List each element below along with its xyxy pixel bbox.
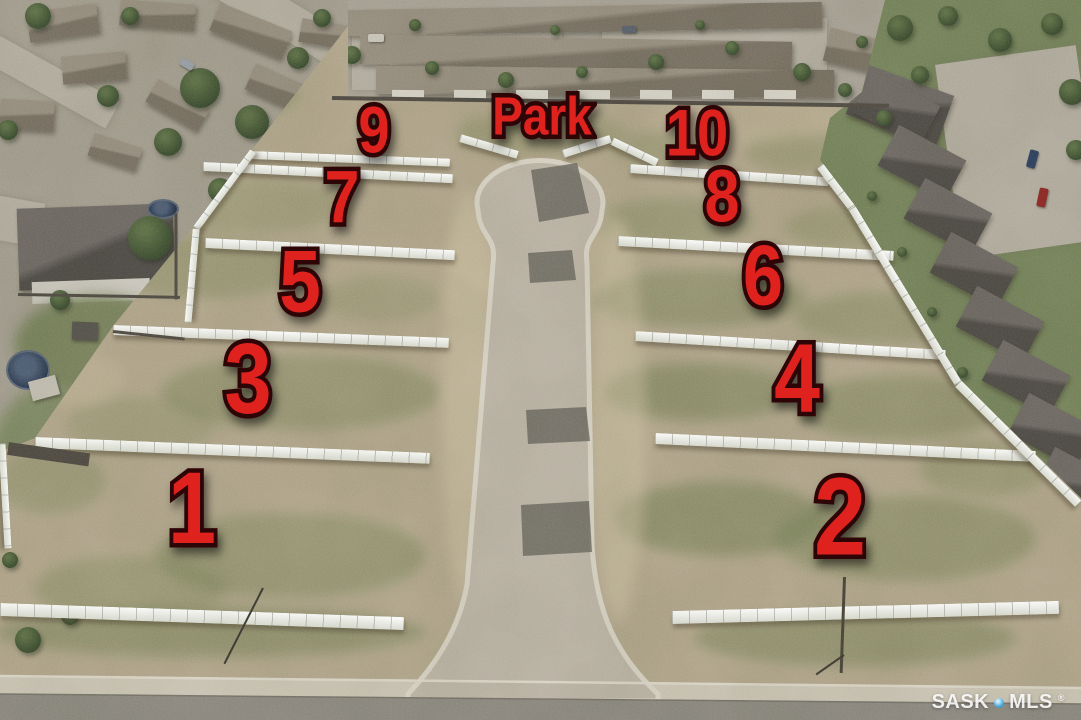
watermark-mls: MLS (1009, 691, 1053, 714)
lot-number-label: 3 (224, 329, 271, 429)
lot-number-label: 6 (743, 233, 783, 318)
watermark-sask: SASK (932, 691, 990, 714)
lot-number-label: 4 (774, 330, 820, 427)
lot-number-label: 1 (168, 457, 216, 559)
watermark-registered: ® (1058, 693, 1065, 703)
lot-number-label: 7 (325, 160, 360, 234)
lot-number-label: 9 (358, 97, 389, 163)
mls-pin-icon (994, 698, 1004, 708)
lot-number-label: 2 (814, 463, 866, 573)
watermark: SASK MLS ® (932, 691, 1065, 714)
lot-number-label: 5 (279, 238, 321, 326)
aerial-photo: 97531108642 Park SASK MLS ® (0, 0, 1081, 720)
lot-number-label: 8 (705, 159, 740, 233)
park-label: Park (492, 89, 592, 143)
